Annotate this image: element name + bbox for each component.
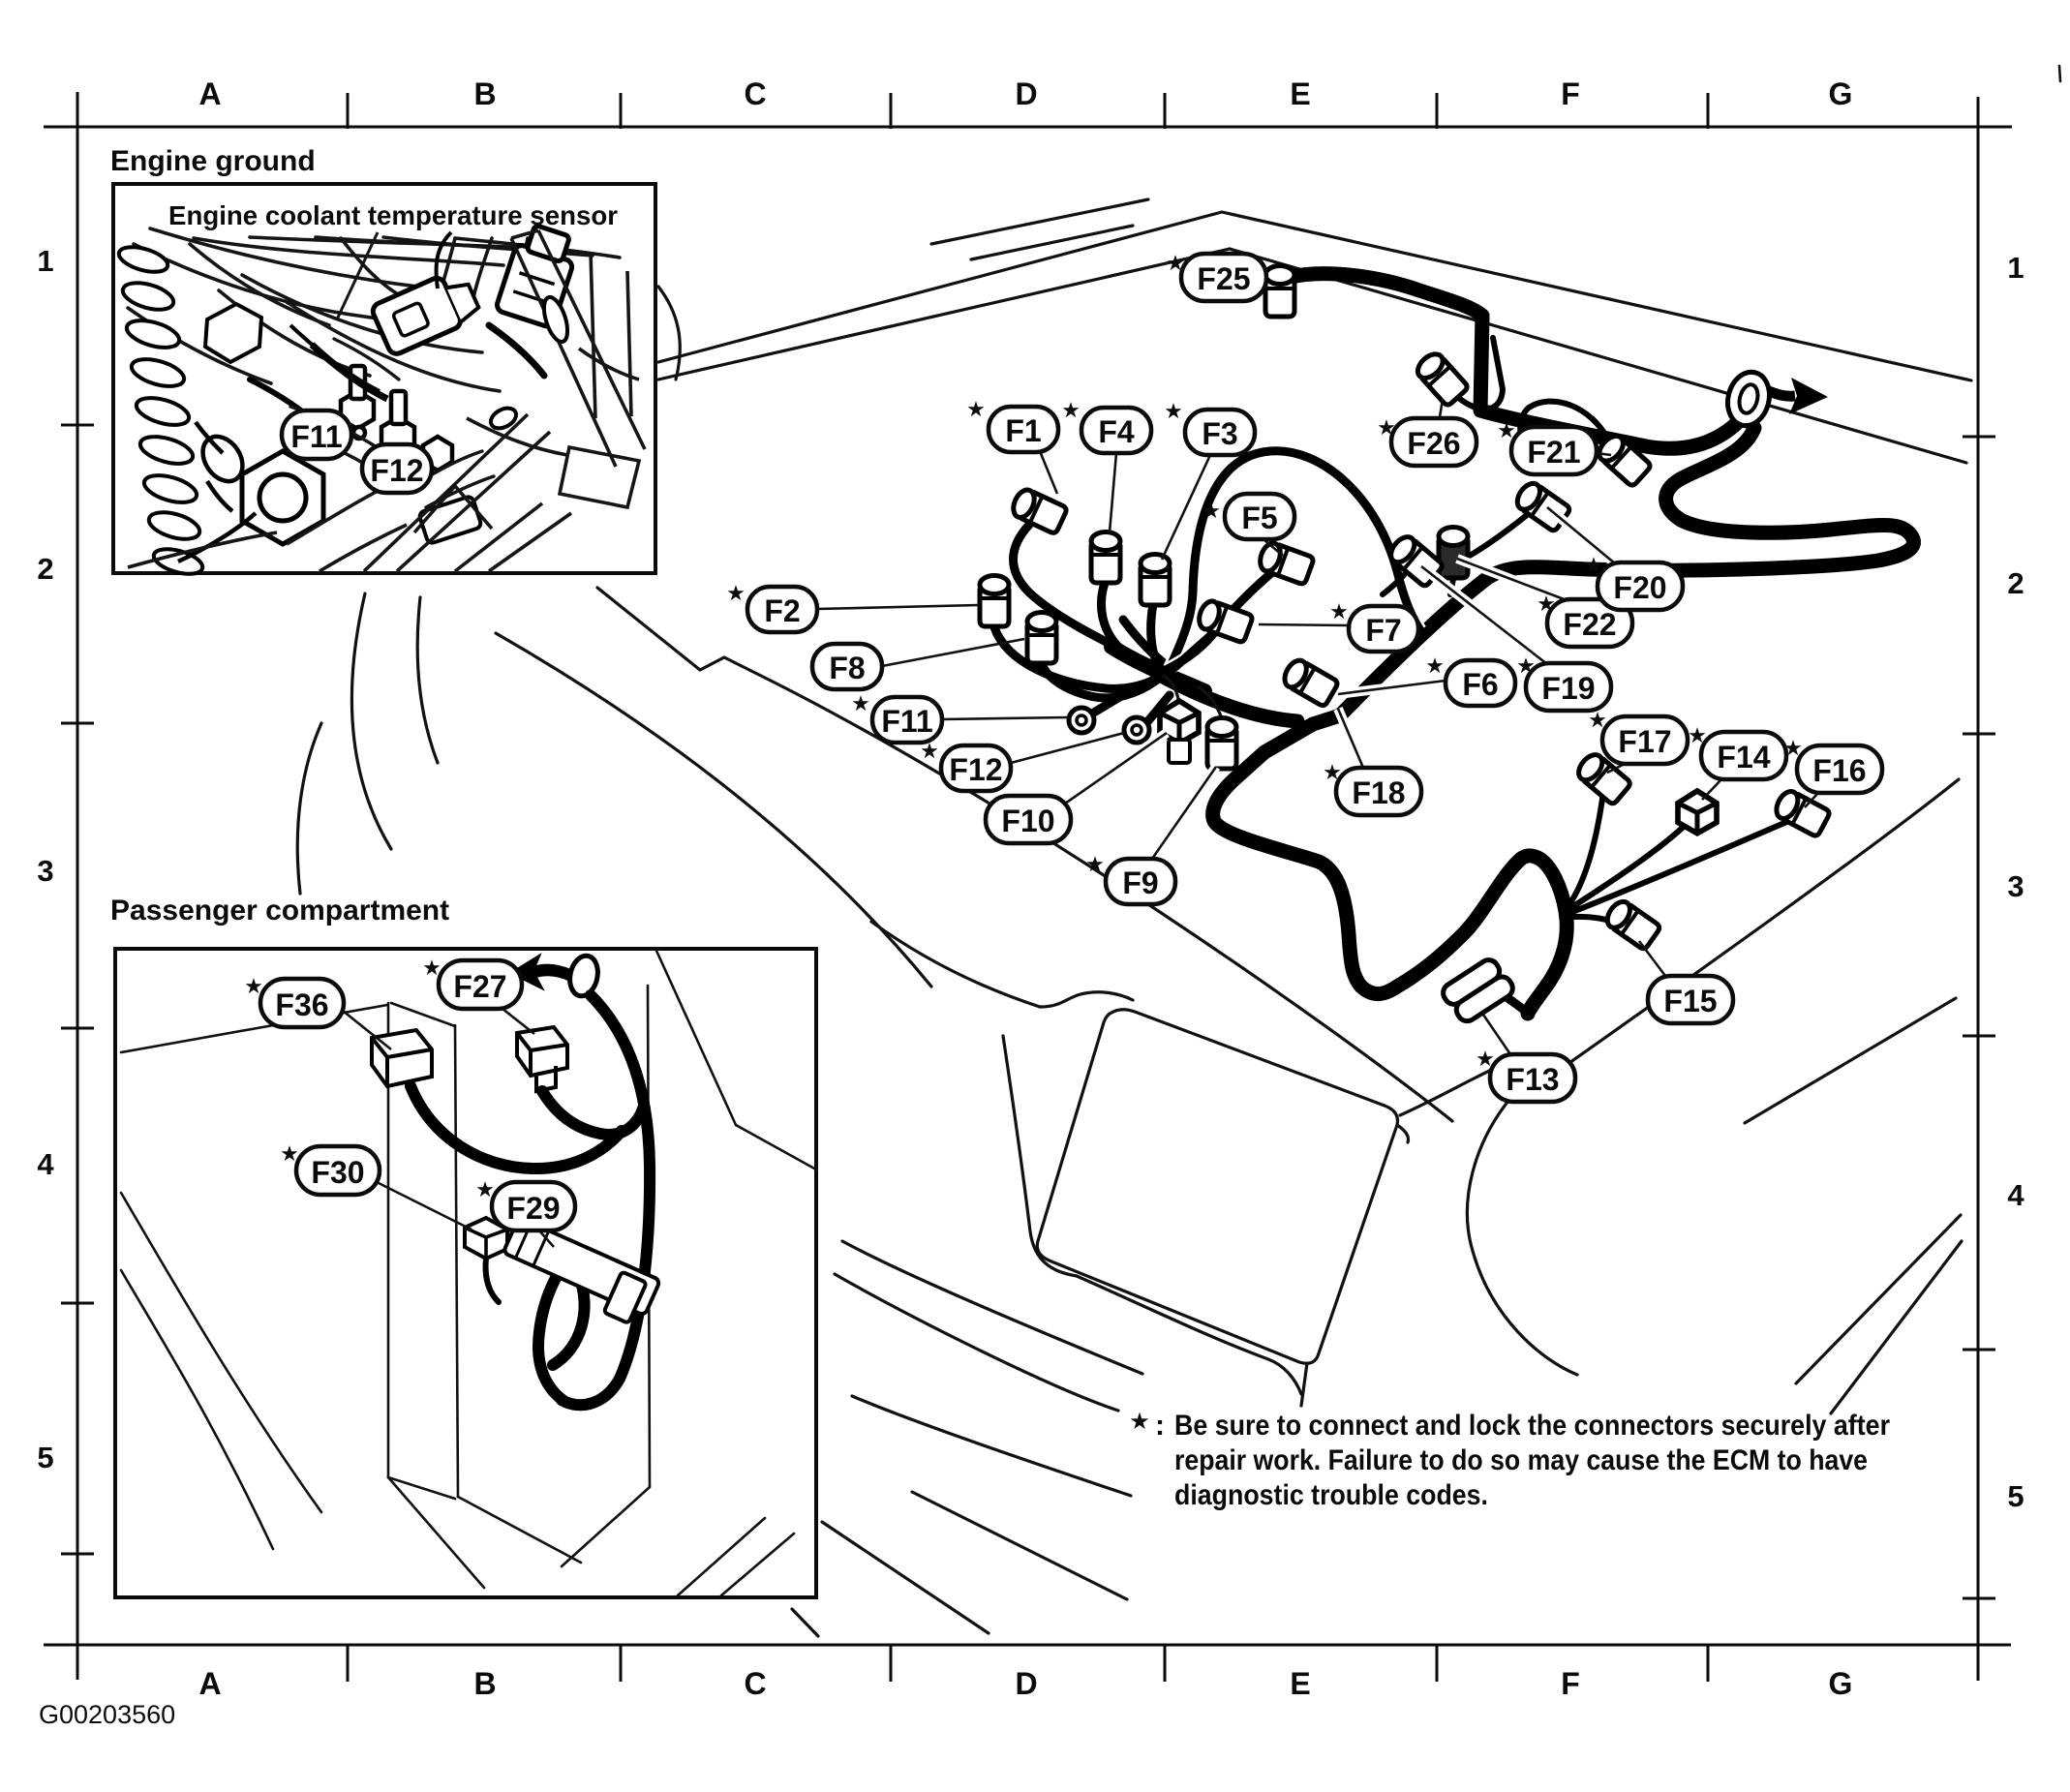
svg-text:F20: F20 (1613, 570, 1666, 605)
svg-text:★: ★ (475, 1177, 495, 1201)
svg-text:5: 5 (2007, 1479, 2024, 1513)
svg-text:C: C (744, 1666, 766, 1701)
svg-text:★: ★ (422, 956, 441, 980)
svg-text:F30: F30 (311, 1155, 364, 1190)
svg-text:★: ★ (1588, 708, 1607, 732)
svg-text:★: ★ (1085, 852, 1105, 876)
svg-text:★: ★ (1783, 736, 1803, 760)
svg-text:★: ★ (851, 691, 870, 715)
svg-text:★: ★ (1497, 418, 1516, 442)
svg-text:B: B (473, 1666, 496, 1701)
svg-text:★: ★ (1329, 599, 1349, 623)
svg-text:F14: F14 (1717, 740, 1770, 775)
svg-text:F2: F2 (764, 593, 800, 628)
svg-text:Passenger compartment: Passenger compartment (110, 895, 449, 926)
svg-text:F21: F21 (1527, 435, 1580, 470)
svg-text:A: A (198, 1666, 221, 1701)
svg-text:F25: F25 (1197, 261, 1250, 296)
svg-text:Engine coolant temperature sen: Engine coolant temperature sensor (168, 200, 618, 230)
svg-text:★: ★ (1688, 723, 1707, 747)
svg-text:F19: F19 (1541, 671, 1595, 706)
svg-text:F26: F26 (1407, 426, 1460, 461)
svg-text:B: B (473, 76, 496, 111)
svg-text:F: F (1561, 76, 1580, 111)
svg-text:1: 1 (37, 244, 53, 278)
svg-text:★: ★ (280, 1141, 299, 1166)
svg-text:★: ★ (966, 397, 986, 421)
svg-text:F4: F4 (1098, 414, 1135, 449)
svg-text:Engine ground: Engine ground (110, 145, 316, 177)
svg-text:G00203560: G00203560 (39, 1700, 175, 1729)
svg-text:3: 3 (37, 854, 53, 888)
svg-text:F10: F10 (1001, 804, 1054, 838)
svg-text:★: ★ (1166, 251, 1185, 275)
svg-text:F27: F27 (453, 969, 506, 1004)
svg-text:★: ★ (1425, 653, 1445, 678)
svg-text:Be sure to connect and lock th: Be sure to connect and lock the connecto… (1174, 1410, 1890, 1442)
svg-text:F11: F11 (290, 419, 342, 454)
svg-text:F16: F16 (1812, 753, 1866, 788)
svg-text:F36: F36 (275, 987, 328, 1022)
svg-text:F12: F12 (370, 453, 423, 488)
svg-text:F11: F11 (881, 704, 932, 739)
svg-text:★: ★ (1129, 1409, 1150, 1435)
svg-text:F: F (1561, 1666, 1580, 1701)
svg-text:F7: F7 (1365, 613, 1401, 648)
svg-text:★: ★ (1537, 592, 1556, 616)
svg-text:★: ★ (244, 974, 263, 998)
svg-text:F18: F18 (1352, 775, 1405, 810)
svg-text:★: ★ (726, 581, 746, 605)
svg-text:★: ★ (1323, 760, 1342, 784)
svg-text:1: 1 (2007, 251, 2024, 285)
svg-text:★: ★ (1164, 399, 1183, 423)
svg-text:F13: F13 (1506, 1062, 1559, 1097)
svg-text:D: D (1015, 1666, 1037, 1701)
svg-text:2: 2 (37, 552, 53, 586)
svg-text:F6: F6 (1462, 667, 1498, 702)
svg-text:★: ★ (1516, 653, 1536, 678)
svg-text:★: ★ (1061, 398, 1081, 422)
svg-text:F22: F22 (1563, 607, 1616, 642)
svg-text:F12: F12 (949, 752, 1002, 787)
svg-text:F1: F1 (1005, 413, 1041, 448)
svg-text::: : (1155, 1410, 1165, 1442)
svg-text:★: ★ (1476, 1047, 1495, 1071)
svg-text:F9: F9 (1122, 866, 1158, 900)
svg-text:F17: F17 (1618, 724, 1671, 759)
svg-text:G: G (1829, 1666, 1853, 1701)
svg-text:D: D (1015, 76, 1037, 111)
svg-text:4: 4 (2007, 1178, 2024, 1212)
svg-text:F29: F29 (506, 1191, 560, 1226)
svg-text:3: 3 (2007, 869, 2024, 903)
svg-text:diagnostic trouble codes.: diagnostic trouble codes. (1174, 1479, 1488, 1511)
svg-text:repair work. Failure to do so: repair work. Failure to do so may cause … (1174, 1444, 1868, 1476)
svg-text:5: 5 (37, 1441, 53, 1474)
svg-text:A: A (198, 76, 221, 111)
svg-text:F15: F15 (1663, 984, 1717, 1018)
svg-text:★: ★ (920, 739, 939, 763)
svg-text:C: C (744, 76, 766, 111)
svg-text:E: E (1290, 76, 1310, 111)
svg-text:★: ★ (1377, 415, 1396, 440)
svg-text:F3: F3 (1202, 416, 1237, 451)
svg-text:2: 2 (2007, 566, 2024, 600)
svg-text:4: 4 (37, 1147, 54, 1181)
svg-text:G: G (1829, 76, 1853, 111)
svg-text:★: ★ (1584, 553, 1603, 577)
svg-text:E: E (1290, 1666, 1310, 1701)
svg-text:F5: F5 (1241, 501, 1277, 535)
svg-text:F8: F8 (829, 651, 865, 685)
svg-text:★: ★ (1202, 499, 1221, 523)
